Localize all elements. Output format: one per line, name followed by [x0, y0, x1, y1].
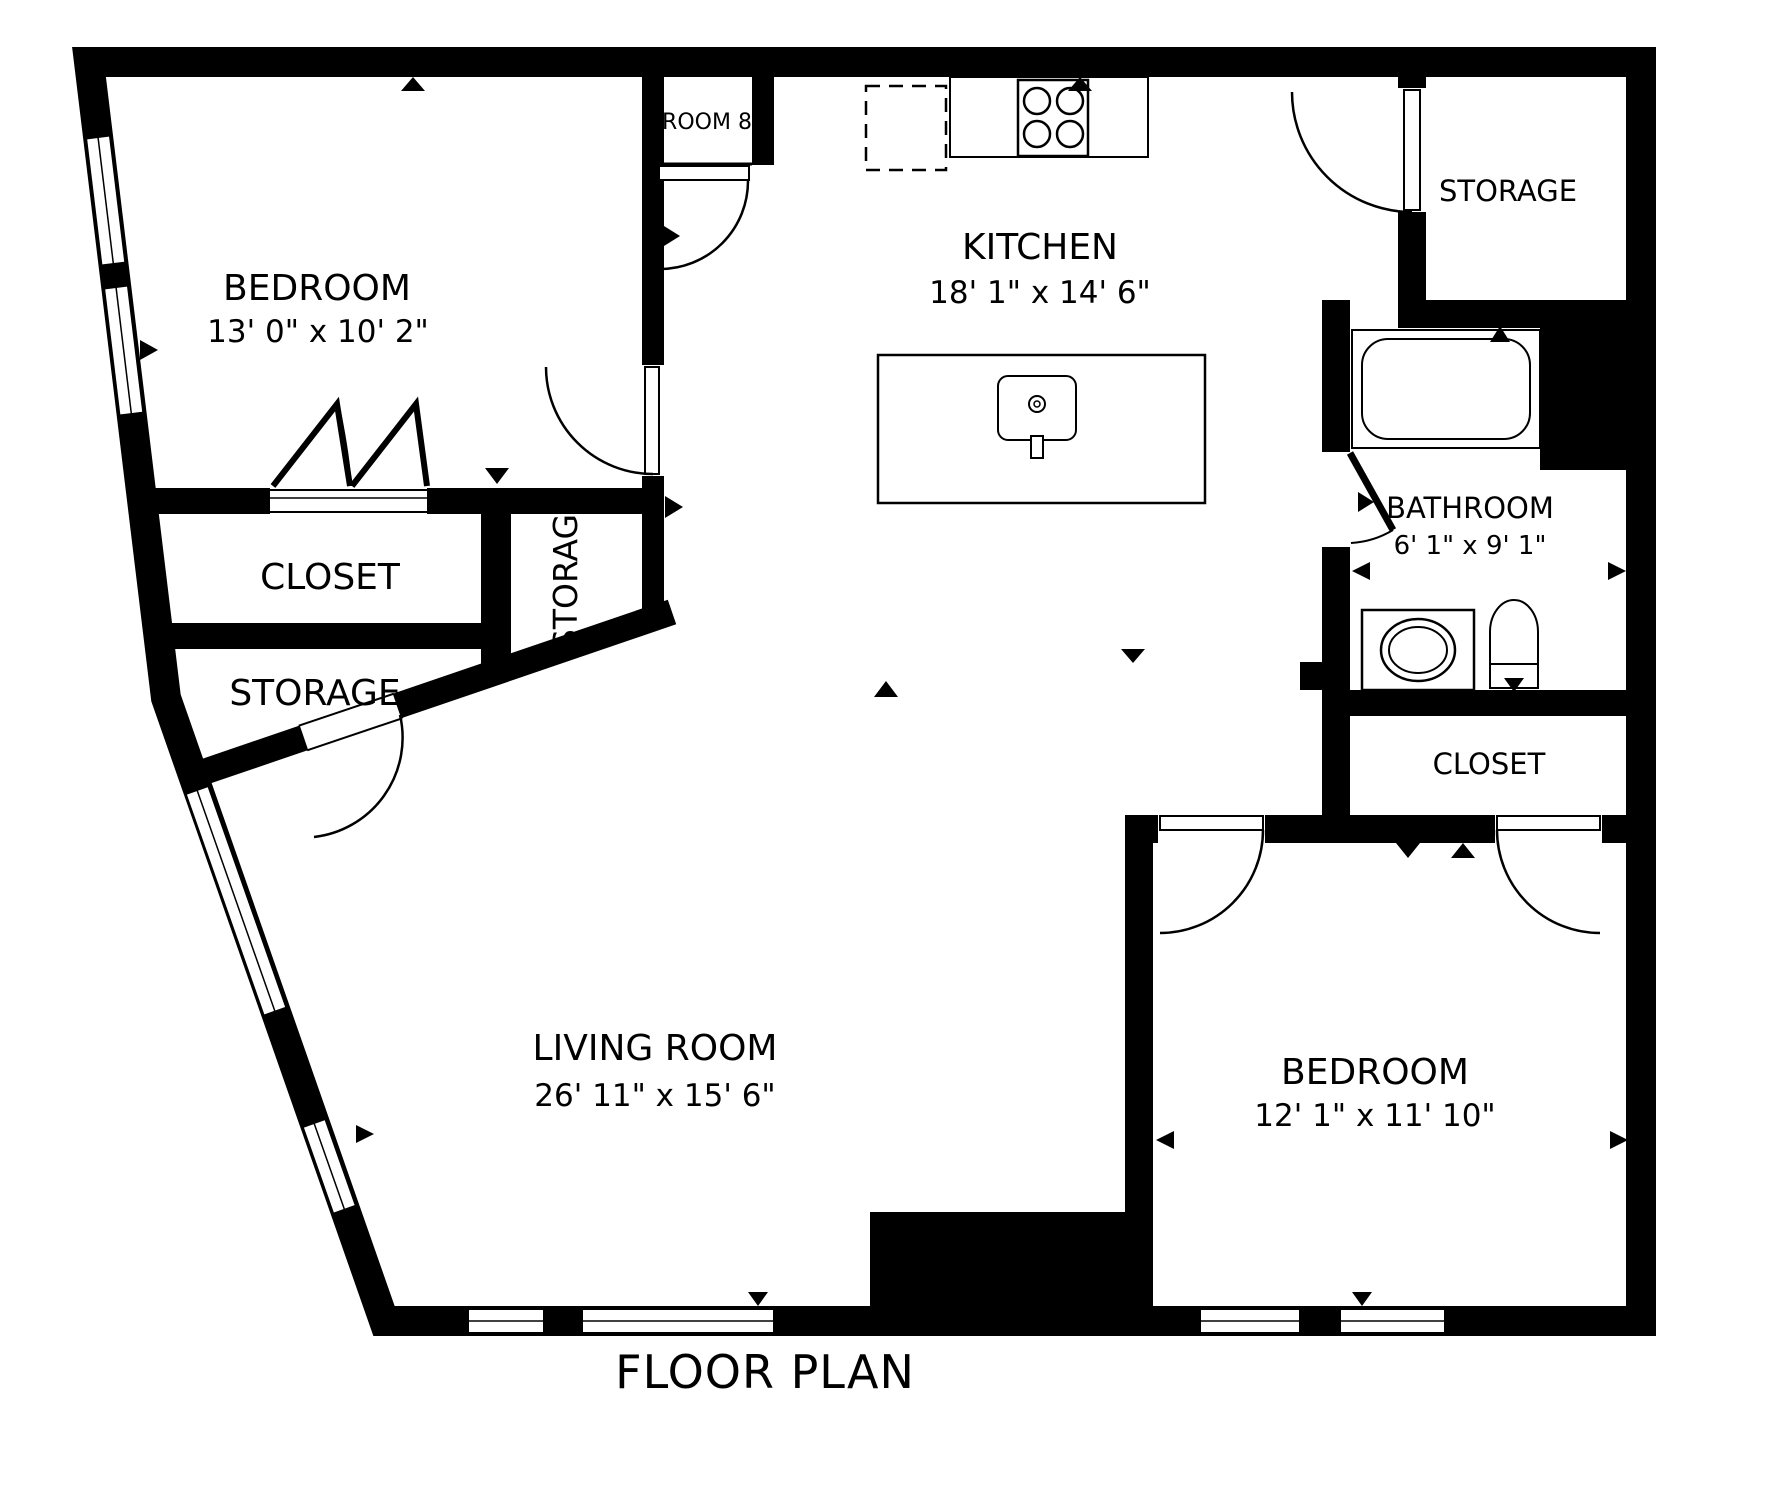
label-storage-tr: STORAGE	[1439, 174, 1577, 208]
bathtub-icon	[1352, 330, 1540, 448]
label-storage-l: STORAGE	[229, 673, 400, 714]
toilet-icon	[1490, 600, 1538, 692]
label-storage-mid: STORAG	[546, 514, 585, 650]
label-bathroom: BATHROOM	[1386, 491, 1554, 525]
wall-block-tub-nook	[1540, 328, 1628, 470]
floor-plan-page: BEDROOM 13' 0" x 10' 2" ROOM 8 KITCHEN 1…	[0, 0, 1776, 1496]
wall-nub	[1300, 662, 1322, 690]
label-kitchen-dims: 18' 1" x 14' 6"	[929, 275, 1151, 311]
label-closet-l: CLOSET	[260, 557, 401, 598]
plan-title: FLOOR PLAN	[615, 1345, 915, 1399]
vanity-sink-icon	[1362, 610, 1474, 690]
kitchen-island	[878, 355, 1205, 503]
window-bedroom-br-left	[1200, 1309, 1300, 1333]
label-living: LIVING ROOM	[533, 1028, 778, 1069]
window-bedroom-br-right	[1340, 1309, 1445, 1333]
label-bedroom-tl: BEDROOM	[223, 268, 411, 309]
stove-icon	[1018, 80, 1088, 156]
floor-plan-drawing: BEDROOM 13' 0" x 10' 2" ROOM 8 KITCHEN 1…	[0, 0, 1776, 1496]
label-bathroom-dims: 6' 1" x 9' 1"	[1394, 531, 1547, 561]
label-closet-r: CLOSET	[1433, 747, 1546, 781]
label-bedroom-br: BEDROOM	[1281, 1052, 1469, 1093]
window-living-bottom-small	[468, 1309, 544, 1333]
label-bedroom-tl-dims: 13' 0" x 10' 2"	[207, 314, 429, 350]
label-kitchen: KITCHEN	[962, 227, 1118, 268]
label-room8: ROOM 8	[662, 110, 752, 135]
refrigerator-icon	[866, 86, 946, 170]
wall-block-bottom	[870, 1212, 1153, 1336]
label-living-dims: 26' 11" x 15' 6"	[534, 1078, 775, 1114]
label-bedroom-br-dims: 12' 1" x 11' 10"	[1254, 1098, 1495, 1134]
window-living-bottom-large	[582, 1309, 774, 1333]
